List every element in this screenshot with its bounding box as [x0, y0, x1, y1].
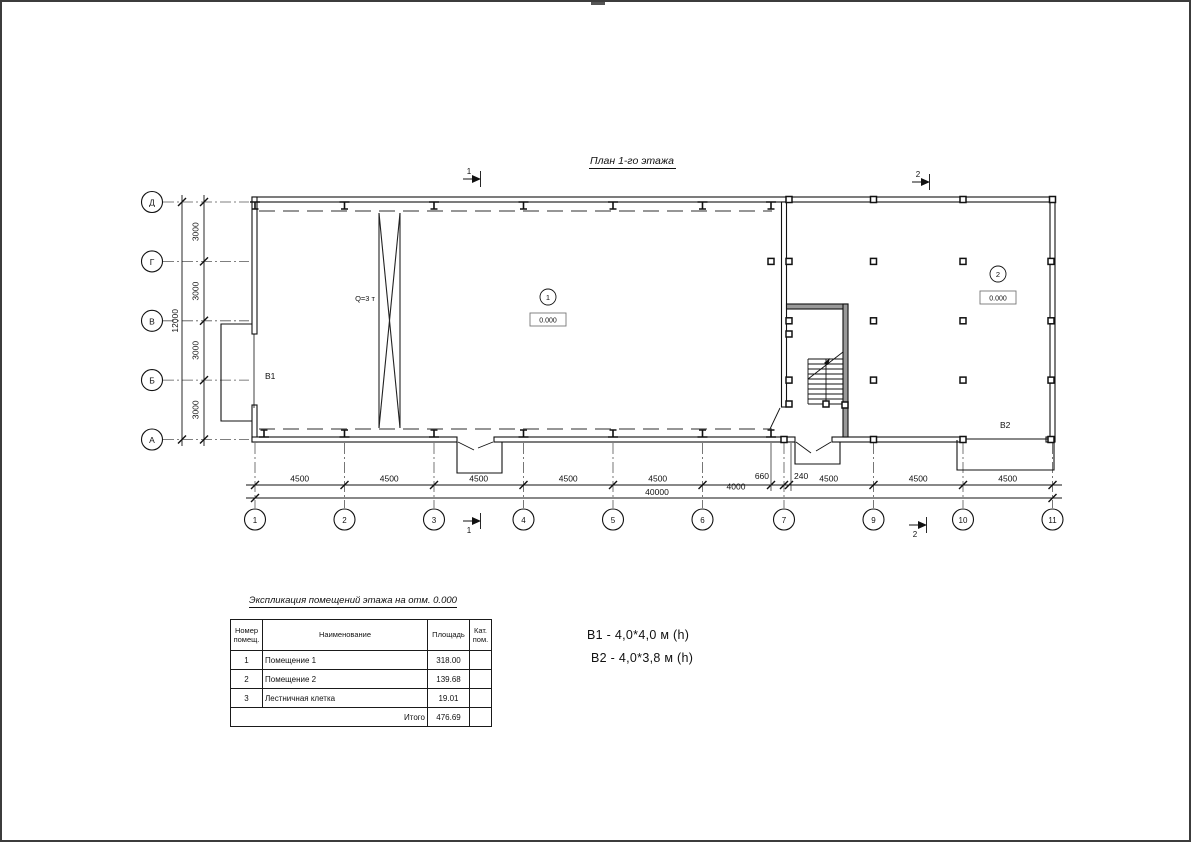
axis-label-4: 4	[521, 516, 526, 525]
bottom-dimension-lines: 4500 4500 4500 4500 4500 4000 4500 4500 …	[246, 443, 1062, 502]
axis-label-d: Д	[149, 198, 155, 208]
section-mark-1-bottom: 1	[463, 513, 481, 535]
legend-total-value: 476.69	[428, 708, 470, 727]
axis-label-v: В	[149, 316, 155, 326]
dim-left-4: 3000	[191, 400, 201, 419]
axis-label-10: 10	[959, 516, 968, 525]
axis-label-2: 2	[342, 516, 347, 525]
legend-row-3-num: 3	[231, 689, 263, 708]
square-columns	[768, 197, 1056, 443]
legend-row-1-num: 1	[231, 651, 263, 670]
gate-b1-annex	[221, 324, 254, 421]
floor-plan-drawing: План 1-го этажа Д Г В Б А	[2, 2, 1191, 842]
dim-small-240: 240	[794, 471, 808, 481]
axis-grid-lines	[163, 202, 1053, 508]
axis-label-9: 9	[871, 516, 876, 525]
legend-header-num: Номер помещ.	[231, 620, 263, 651]
axis-label-3: 3	[432, 516, 437, 525]
crane-capacity-label: Q=3 т	[355, 294, 375, 303]
dim-left-2: 3000	[191, 281, 201, 300]
legend-total-label: Итого	[231, 708, 428, 727]
ibeam-columns	[250, 202, 776, 437]
section-2-top-label: 2	[916, 170, 921, 179]
gate-specs: В1 - 4,0*4,0 м (h) В2 - 4,0*3,8 м (h)	[587, 624, 693, 670]
dim-bottom-1: 4500	[290, 474, 309, 484]
exterior-vestibules	[457, 440, 1054, 473]
room-2-number: 2	[996, 270, 1000, 279]
room-marker-2: 2 0.000	[980, 266, 1016, 304]
section-1-bottom-label: 1	[467, 526, 472, 535]
vertical-axis-bubbles: Д Г В Б А	[142, 192, 163, 451]
section-1-top-label: 1	[467, 167, 472, 176]
gate-b1-label: В1	[265, 371, 276, 381]
gate-spec-b2: В2 - 4,0*3,8 м (h)	[591, 647, 693, 670]
section-mark-2-bottom: 2	[909, 517, 927, 539]
staircase	[808, 352, 843, 404]
dim-bottom-8: 4500	[909, 474, 928, 484]
dim-small-660: 660	[755, 471, 769, 481]
legend-row-2-cat	[470, 670, 492, 689]
section-2-bottom-label: 2	[913, 530, 918, 539]
legend-header-area: Площадь	[428, 620, 470, 651]
legend-header-cat: Кат. пом.	[470, 620, 492, 651]
room-1-elevation: 0.000	[539, 318, 557, 325]
legend-total-row: Итого 476.69	[231, 708, 492, 727]
dim-bottom-2: 4500	[380, 474, 399, 484]
horizontal-axis-bubbles: 1 2 3 4 5 6 7 9 10 11	[245, 509, 1064, 530]
legend-row-1: 1 Помещение 1 318.00	[231, 651, 492, 670]
room-1-number: 1	[546, 293, 550, 302]
dim-left-3: 3000	[191, 341, 201, 360]
axis-label-5: 5	[611, 516, 616, 525]
drawing-title: План 1-го этажа	[589, 155, 676, 169]
legend-row-2-num: 2	[231, 670, 263, 689]
legend-row-3-name: Лестничная клетка	[263, 689, 428, 708]
drawing-page: План 1-го этажа Д Г В Б А	[0, 0, 1191, 842]
axis-label-11: 11	[1048, 516, 1057, 525]
legend-row-1-cat	[470, 651, 492, 670]
stair-enclosure-walls	[787, 304, 849, 437]
dim-left-1: 3000	[191, 222, 201, 241]
door-swings	[458, 408, 831, 453]
dim-bottom-4: 4500	[559, 474, 578, 484]
section-mark-2-top: 2	[912, 170, 930, 190]
dim-bottom-6: 4000	[727, 482, 746, 492]
legend-row-2: 2 Помещение 2 139.68	[231, 670, 492, 689]
gate-spec-b1: В1 - 4,0*4,0 м (h)	[587, 624, 693, 647]
legend-row-1-area: 318.00	[428, 651, 470, 670]
gate-b2-label: В2	[1000, 420, 1011, 430]
legend-row-2-name: Помещение 2	[263, 670, 428, 689]
legend-table: Номер помещ. Наименование Площадь Кат. п…	[230, 619, 492, 727]
room-marker-1: 1 0.000	[530, 289, 566, 326]
dim-bottom-9: 4500	[998, 474, 1017, 484]
legend-title: Экспликация помещений этажа на отм. 0.00…	[249, 595, 457, 608]
axis-label-1: 1	[253, 516, 258, 525]
section-mark-1-top: 1	[463, 167, 481, 187]
legend-row-1-name: Помещение 1	[263, 651, 428, 670]
legend-row-3-cat	[470, 689, 492, 708]
legend-row-3: 3 Лестничная клетка 19.01	[231, 689, 492, 708]
legend-header-name: Наименование	[263, 620, 428, 651]
room-2-elevation: 0.000	[989, 296, 1007, 303]
crane-rail-lines	[259, 211, 772, 429]
dim-bottom-7: 4500	[819, 474, 838, 484]
axis-label-6: 6	[700, 516, 705, 525]
axis-label-7: 7	[782, 516, 787, 525]
room-legend: Экспликация помещений этажа на отм. 0.00…	[230, 590, 482, 727]
dim-left-total: 12000	[170, 309, 180, 333]
legend-row-2-area: 139.68	[428, 670, 470, 689]
axis-label-g: Г	[150, 257, 155, 267]
plan-title: План 1-го этажа	[590, 155, 674, 167]
crane-symbol	[379, 213, 400, 428]
dim-bottom-total: 40000	[645, 487, 669, 497]
legend-row-3-area: 19.01	[428, 689, 470, 708]
building-walls	[252, 197, 1055, 442]
top-edge-mark	[591, 2, 605, 5]
dim-bottom-5: 4500	[648, 474, 667, 484]
axis-label-a: А	[149, 435, 155, 445]
axis-label-b: Б	[149, 376, 155, 386]
legend-total-cat	[470, 708, 492, 727]
dim-bottom-3: 4500	[469, 474, 488, 484]
